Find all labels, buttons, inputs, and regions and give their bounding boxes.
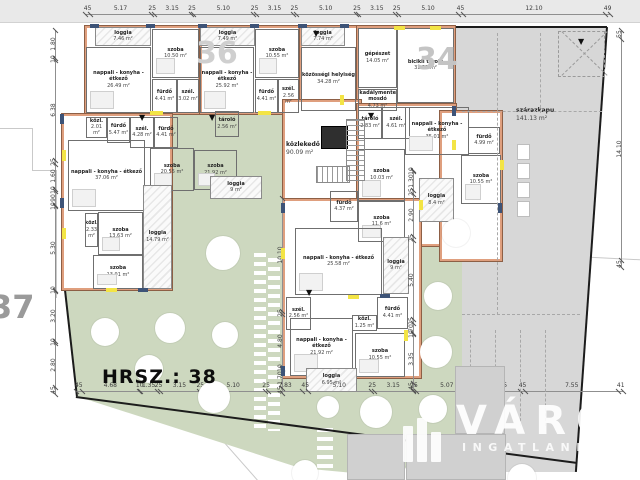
- room-area-label: 4.41 m²: [156, 132, 176, 138]
- ramp-dashed-area: [558, 31, 605, 77]
- window-marker-yellow: [258, 111, 271, 115]
- window-marker-yellow: [419, 200, 423, 210]
- window-marker-blue: [250, 24, 259, 28]
- room-szoba: szoba10.55 m²: [255, 29, 299, 78]
- watermark-logo-icon: [431, 432, 441, 462]
- window-marker-blue: [380, 294, 390, 298]
- dimension-label: 14.10: [616, 137, 624, 161]
- room-area-label: 26.49 m²: [107, 83, 130, 89]
- room-t-rol-: tároló2.56 m²: [215, 111, 239, 137]
- dimension-label: 3.35: [408, 347, 416, 371]
- room-sz-l-: szél.2.56 m²: [278, 79, 299, 113]
- stepping-stone-path: [317, 428, 333, 480]
- window-marker-yellow: [150, 111, 163, 115]
- room-area-label: 4.41 m²: [257, 96, 277, 102]
- room-f-rd-: fürdő4.37 m²: [330, 191, 358, 222]
- room-area-label: 5.47 m²: [109, 130, 129, 136]
- room-area-label: 37.06 m²: [95, 175, 118, 181]
- tree: [442, 219, 470, 247]
- parcel-number-37: 37: [0, 288, 35, 326]
- neighbor-outline: [590, 257, 640, 261]
- room-nappali-konyha-tkez-: nappali - konyha - étkező25.58 m²: [295, 228, 382, 295]
- dimension-label: 5.40: [408, 268, 416, 292]
- room-area-label: 14.05 m²: [366, 58, 389, 64]
- room-nappali-konyha-tkez-: nappali - konyha - étkező37.06 m²: [68, 140, 145, 211]
- room-szoba: szoba10.03 m²: [358, 149, 405, 201]
- dimension-label: 2.80: [50, 353, 58, 377]
- room-name-label: nappali - konyha - étkező: [201, 71, 253, 83]
- neighbor-outline: [0, 128, 33, 129]
- dimension-label: 45: [408, 374, 416, 398]
- room-loggia: loggia8.4 m²: [419, 178, 454, 222]
- room-area-label: 8.4 m²: [428, 200, 444, 206]
- room-area-label: 25.92 m²: [216, 83, 239, 89]
- room-name-label: nappali - konyha - étkező: [406, 122, 468, 134]
- room-k-z-ss-gi-helyis-g: közösségi helyiség34.28 m²: [301, 47, 356, 111]
- room-area-label: 2.56 m²: [279, 93, 298, 105]
- room-loggia: loggia9 m²: [383, 237, 409, 294]
- room-g-p-szet: gépészet14.05 m²: [358, 28, 397, 88]
- furniture: [409, 136, 433, 151]
- window-marker-blue: [452, 106, 456, 116]
- room-sz-l-: szél.3.02 m²: [177, 79, 199, 113]
- dashed-guide-line: [462, 111, 602, 112]
- dimension-label: 5.17: [109, 5, 133, 13]
- parcel-number-34: 34: [416, 42, 458, 77]
- window-marker-blue: [298, 24, 307, 28]
- window-marker-blue: [90, 24, 99, 28]
- room-name-label: nappali - konyha - étkező: [87, 71, 150, 83]
- room-k-zl-: közl.1.25 m²: [352, 315, 377, 331]
- room-area-label: 2.01 m²: [87, 124, 106, 136]
- dimension-label: 7.55: [560, 382, 584, 390]
- room-area-label: 7.46 m²: [113, 36, 133, 42]
- window-marker-yellow: [430, 26, 441, 30]
- furniture: [97, 274, 117, 285]
- dimension-label: 55: [616, 22, 624, 46]
- room-f-rd-: fürdő4.99 m²: [468, 127, 500, 154]
- room-area-label: 3.02 m²: [178, 96, 198, 102]
- watermark-brand-name: VÁROS: [456, 398, 640, 444]
- dimension-label: 5.10: [416, 5, 440, 13]
- dimension-label: 6.38: [50, 98, 58, 122]
- window-marker-blue: [138, 288, 148, 292]
- room-nappali-konyha-tkez-: nappali - konyha - étkező26.49 m²: [86, 47, 151, 113]
- furniture: [72, 189, 96, 207]
- window-marker-blue: [60, 198, 64, 208]
- room-k-zl-: közl.2.33 m²: [85, 213, 98, 247]
- floor-plan-canvas: loggia7.46 m²szoba10.50 m²nappali - kony…: [0, 0, 640, 480]
- neighbor-outline: [32, 128, 33, 171]
- room-f-rd-: fürdő4.41 m²: [377, 297, 408, 329]
- furniture: [204, 91, 226, 109]
- window-marker-yellow: [62, 150, 66, 161]
- room-loggia: loggia7.46 m²: [95, 27, 151, 46]
- tree: [155, 313, 185, 343]
- window-marker-blue: [198, 24, 207, 28]
- plot-boundary: [455, 26, 607, 28]
- window-marker-yellow: [62, 228, 66, 239]
- tree: [317, 396, 339, 418]
- room-szoba: szoba13.63 m²: [98, 212, 143, 255]
- neighbor-building: [347, 434, 405, 480]
- dashed-guide-line: [540, 33, 541, 113]
- entrance-arrow-icon: ▼: [313, 30, 319, 38]
- tree: [292, 460, 318, 480]
- window-marker-yellow: [106, 288, 117, 292]
- dashed-guide-line: [462, 314, 580, 315]
- tree: [91, 318, 119, 346]
- dimension-label: 5.10: [327, 382, 351, 390]
- furniture: [102, 237, 120, 251]
- dimension-label: 12.10: [522, 5, 546, 13]
- room-szoba: szoba10.55 m²: [461, 155, 501, 204]
- room-area-label: 141.13 m²: [516, 115, 547, 122]
- room-area-label: 4.61 m²: [386, 123, 406, 129]
- dimension-label: 2.90: [408, 203, 416, 227]
- parking-stall: [517, 182, 530, 198]
- room-loggia: loggia7.74 m²: [301, 27, 345, 46]
- room-area-label: 9 m²: [230, 187, 242, 193]
- room-area-label: 4.41 m²: [155, 96, 175, 102]
- room-nappali-konyha-tkez-: nappali - konyha - étkező35.01 m²: [405, 107, 469, 155]
- room-area-label: 4.28 m²: [132, 132, 152, 138]
- room-area-label: 4.41 m²: [383, 313, 403, 319]
- dimension-label: 5.30: [50, 236, 58, 260]
- room-area-label: 4.99 m²: [474, 140, 494, 146]
- plot-id-label: HRSZ.: 38: [102, 366, 217, 388]
- furniture: [362, 180, 381, 197]
- entrance-arrow-icon: ▼: [209, 114, 215, 122]
- furniture: [359, 359, 379, 373]
- dimension-line: [85, 14, 610, 15]
- room-f-rd-: fürdő4.41 m²: [152, 79, 177, 113]
- window-marker-yellow: [500, 160, 504, 170]
- watermark-logo-icon: [417, 418, 427, 462]
- room-szoba: szoba13.91 m²: [93, 255, 143, 289]
- stepping-stone-path: [254, 253, 266, 431]
- tree: [424, 282, 452, 310]
- room-area-label: 9 m²: [390, 265, 402, 271]
- room-f-rd-: fürdő4.41 m²: [255, 79, 278, 113]
- parcel-number-36: 36: [196, 36, 238, 71]
- window-marker-yellow: [340, 95, 344, 105]
- dimension-label: 3.20: [50, 304, 58, 328]
- window-marker-blue: [281, 366, 285, 376]
- entrance-arrow-icon: ▼: [139, 114, 145, 122]
- tree: [206, 236, 240, 270]
- room-loggia: loggia9 m²: [210, 176, 262, 199]
- entrance-arrow-icon: ▼: [306, 289, 312, 297]
- watermark-brand-subtitle: INGATLANIRODA: [462, 441, 640, 454]
- room-area-label: 90.09 m²: [286, 149, 313, 156]
- room-area-label: 1.25 m²: [355, 323, 375, 329]
- room-area-label: 14.79 m²: [146, 237, 169, 243]
- staircase: [316, 166, 350, 183]
- room-k-zl-: közl.2.01 m²: [86, 117, 107, 138]
- furniture: [465, 184, 481, 200]
- room-f-rd-: fürdő4.41 m²: [154, 117, 178, 148]
- window-marker-yellow: [452, 140, 456, 150]
- room-name-label: akadálymentes mosdó: [358, 91, 397, 103]
- dimension-label: 5.10: [211, 5, 235, 13]
- tree: [212, 322, 238, 348]
- window-marker-blue: [340, 24, 349, 28]
- tree: [360, 396, 392, 428]
- window-marker-blue: [60, 114, 64, 124]
- dimension-label: 45: [50, 378, 58, 402]
- window-marker-yellow: [394, 26, 405, 30]
- room-area-label: 25.58 m²: [327, 261, 350, 267]
- room-szoba: szoba10.55 m²: [355, 333, 405, 377]
- window-marker-yellow: [348, 295, 359, 299]
- tree: [420, 336, 452, 368]
- entrance-arrow-icon: ▼: [368, 112, 374, 120]
- window-marker-yellow: [404, 330, 408, 341]
- room-szoba: szoba10.50 m²: [152, 29, 199, 78]
- dimension-label: 4.80: [277, 329, 285, 353]
- room-sz-razkapu: szárazkapu141.13 m²: [516, 106, 576, 124]
- furniture: [90, 91, 114, 109]
- room-area-label: 2.33 m²: [86, 227, 97, 239]
- dimension-label: 45: [616, 252, 624, 276]
- room-loggia: loggia14.79 m²: [143, 185, 172, 289]
- window-marker-blue: [281, 203, 285, 213]
- room-area-label: 34.28 m²: [317, 79, 340, 85]
- furniture: [259, 58, 277, 74]
- window-marker-yellow: [281, 248, 285, 259]
- dashed-guide-line: [497, 33, 498, 315]
- window-marker-blue: [146, 24, 155, 28]
- room-name-label: nappali - konyha - étkező: [291, 338, 352, 350]
- furniture: [156, 58, 175, 74]
- room-area-label: 4.37 m²: [334, 206, 354, 212]
- room-name-label: közlekedő: [286, 142, 320, 149]
- parking-stall: [517, 144, 530, 160]
- parking-stall: [517, 201, 530, 217]
- window-marker-blue: [498, 203, 502, 213]
- parking-stall: [517, 163, 530, 179]
- elevator-shaft: [321, 126, 348, 149]
- room-area-label: 2.56 m²: [217, 124, 237, 130]
- dimension-label: 5.10: [314, 5, 338, 13]
- watermark-logo-icon: [403, 426, 413, 462]
